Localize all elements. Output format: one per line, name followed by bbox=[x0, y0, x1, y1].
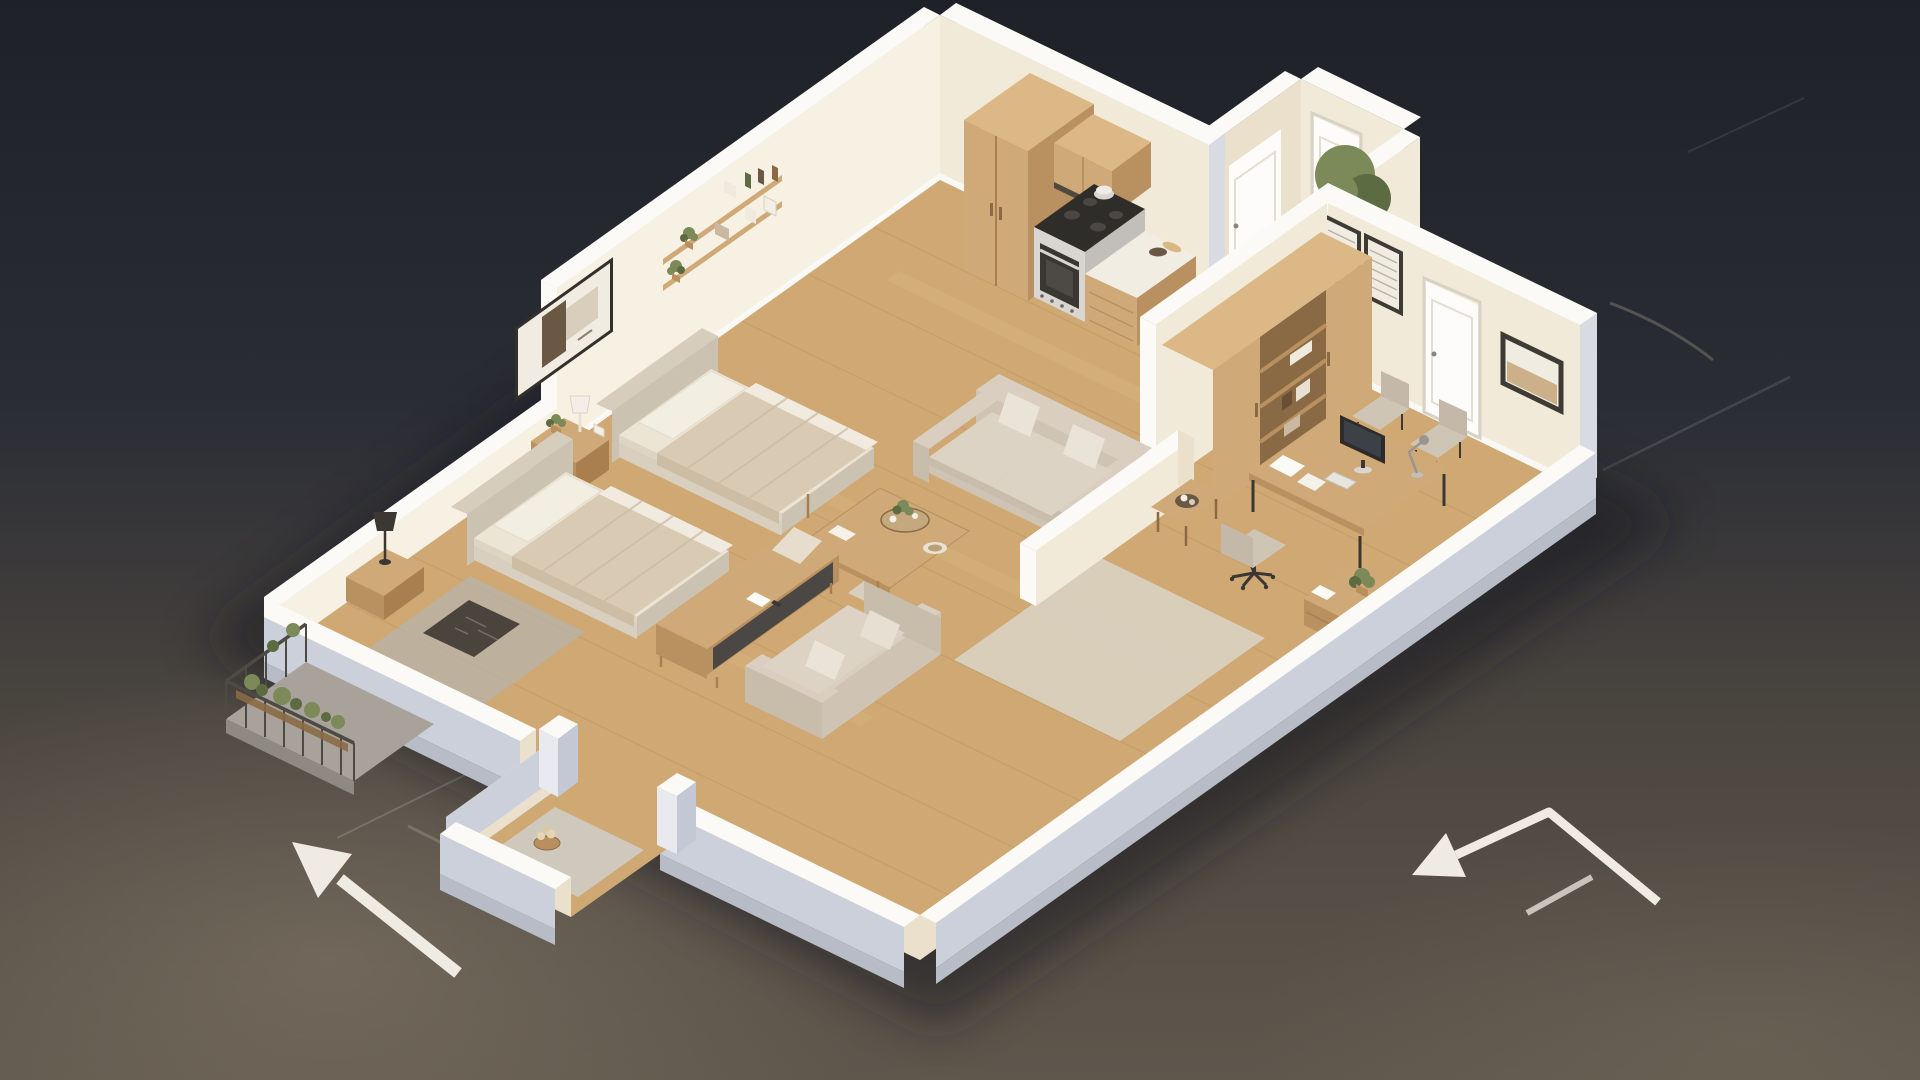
floorplan-render bbox=[0, 0, 1920, 1080]
porch-pillar-right bbox=[657, 773, 696, 854]
porch-pillar-left bbox=[539, 715, 578, 797]
